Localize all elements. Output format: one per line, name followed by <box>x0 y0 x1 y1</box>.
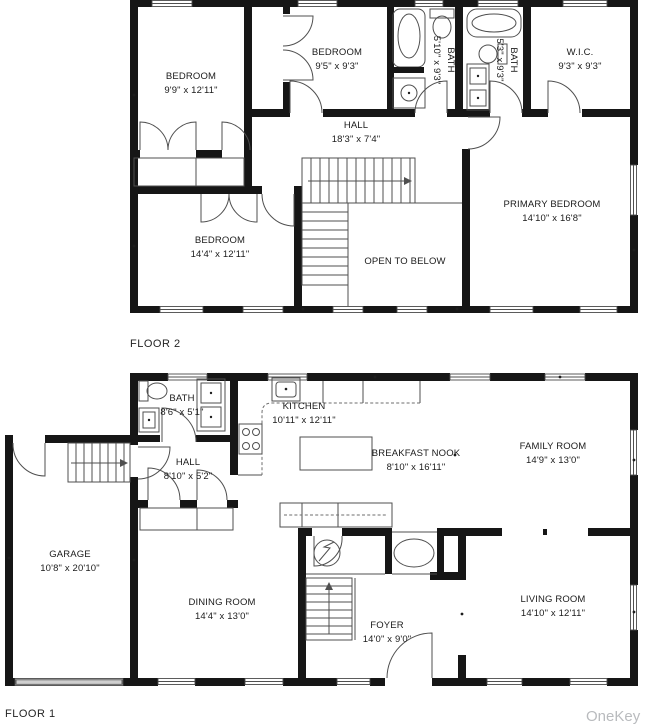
watermark: OneKey ML <box>586 708 645 725</box>
room-label-bath-1: BATH 5'10" x 9'3" <box>429 36 457 85</box>
room-label-wic: W.I.C. 9'3" x 9'3" <box>558 46 601 74</box>
closet <box>140 503 392 530</box>
sink-icon <box>467 64 489 110</box>
kitchen-sink-icon <box>272 378 300 401</box>
room-label-open-to-below: OPEN TO BELOW <box>364 255 445 269</box>
room-label-bedroom-lower: BEDROOM 14'4" x 12'11" <box>191 234 250 262</box>
electrical-panel-icon <box>314 540 340 566</box>
garage-door <box>15 679 123 686</box>
room-label-bath-f1: BATH 8'6" x 5'1" <box>160 392 203 420</box>
room-label-family-room: FAMILY ROOM 14'9" x 13'0" <box>520 440 587 468</box>
sink-icon <box>393 78 425 108</box>
window-icon <box>631 165 637 215</box>
bathtub-icon <box>467 9 521 37</box>
room-label-hall-f1: HALL 8'10" x 5'2" <box>164 456 213 484</box>
kitchen-island <box>300 437 372 470</box>
wall-stub <box>387 67 424 73</box>
shower-icon <box>139 408 159 432</box>
room-label-foyer: FOYER 14'0" x 9'0" <box>363 619 412 647</box>
room-label-primary-bedroom: PRIMARY BEDROOM 14'10" x 16'8" <box>504 198 601 226</box>
room-label-bath-2: BATH 5'3" x 9'3" <box>492 38 520 81</box>
room-label-garage: GARAGE 10'8" x 20'10" <box>40 548 100 576</box>
floor1-label: FLOOR 1 <box>5 708 56 720</box>
room-label-living-room: LIVING ROOM 14'10" x 12'11" <box>521 593 586 621</box>
room-label-bedroom-mid: BEDROOM 9'5" x 9'3" <box>312 46 362 74</box>
stove-icon <box>239 424 262 454</box>
floor-plan-page: BEDROOM 9'9" x 12'11" BEDROOM 9'5" x 9'3… <box>0 0 645 727</box>
room-label-dining-room: DINING ROOM 14'4" x 13'0" <box>188 596 255 624</box>
floor2-label: FLOOR 2 <box>130 338 181 350</box>
staircase <box>68 443 130 482</box>
sliding-door-closet <box>392 532 437 574</box>
room-label-bedroom-left: BEDROOM 9'9" x 12'11" <box>164 70 217 98</box>
staircase <box>306 578 355 640</box>
room-label-hall-f2: HALL 18'3" x 7'4" <box>332 119 381 147</box>
closet <box>134 158 244 186</box>
bathtub-icon <box>393 9 425 67</box>
toilet-icon <box>430 9 454 38</box>
room-label-breakfast-nook: BREAKFAST NOOK 8'10" x 16'11" <box>372 447 461 475</box>
room-label-kitchen: KITCHEN 10'11" x 12'11" <box>272 400 336 428</box>
staircase <box>302 158 462 306</box>
